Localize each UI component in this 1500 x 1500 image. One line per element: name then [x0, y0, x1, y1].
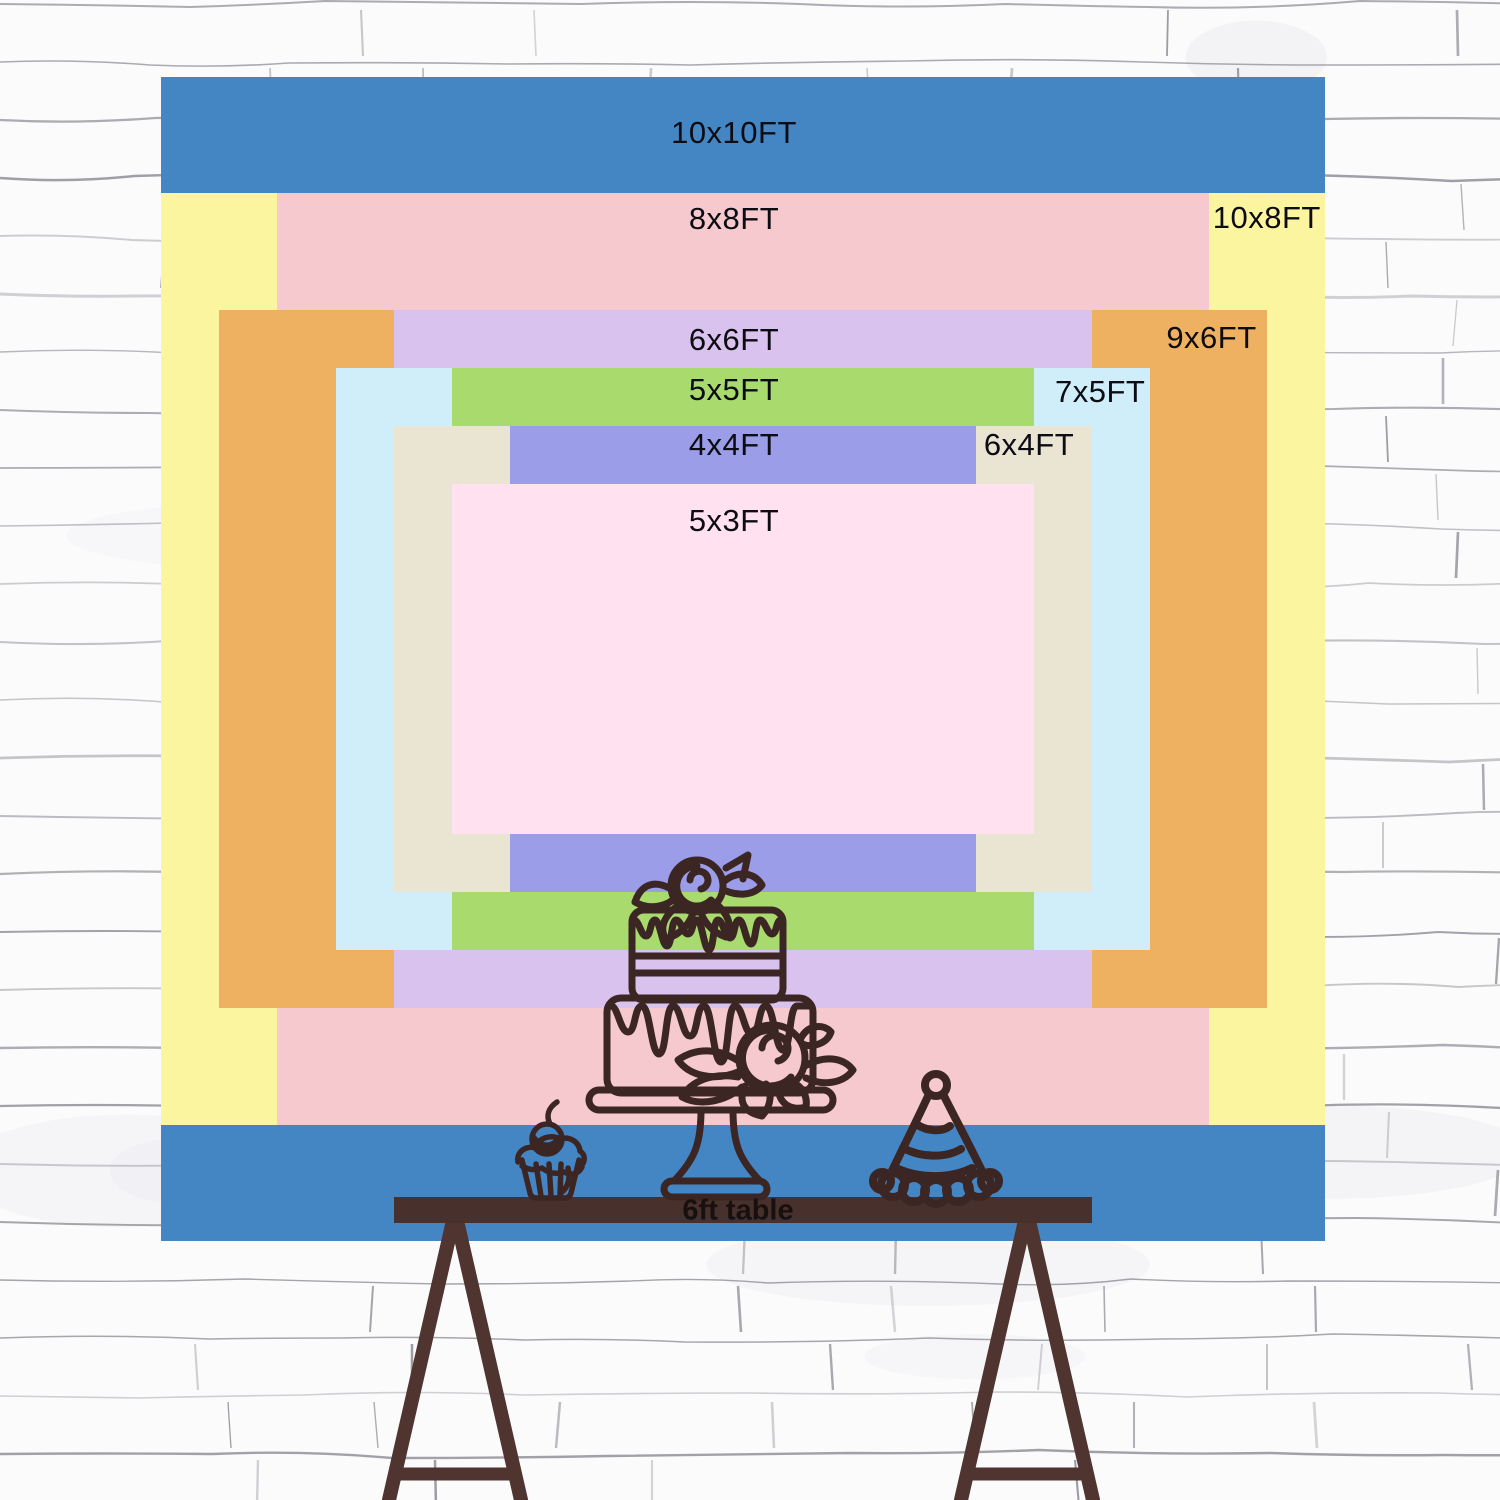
table-leg-right — [961, 1212, 1093, 1500]
party-hat-illustration — [873, 1074, 999, 1204]
backdrop-size-chart-image: 10x10FT10x8FT8x8FT9x6FT6x6FT7x5FT5x5FT6x… — [0, 0, 1500, 1500]
cupcake-illustration — [518, 1102, 585, 1198]
cake-illustration — [589, 855, 853, 1197]
table-leg-left — [389, 1212, 521, 1500]
trestle-table — [389, 1197, 1093, 1500]
table-size-label: 6ft table — [682, 1195, 793, 1228]
